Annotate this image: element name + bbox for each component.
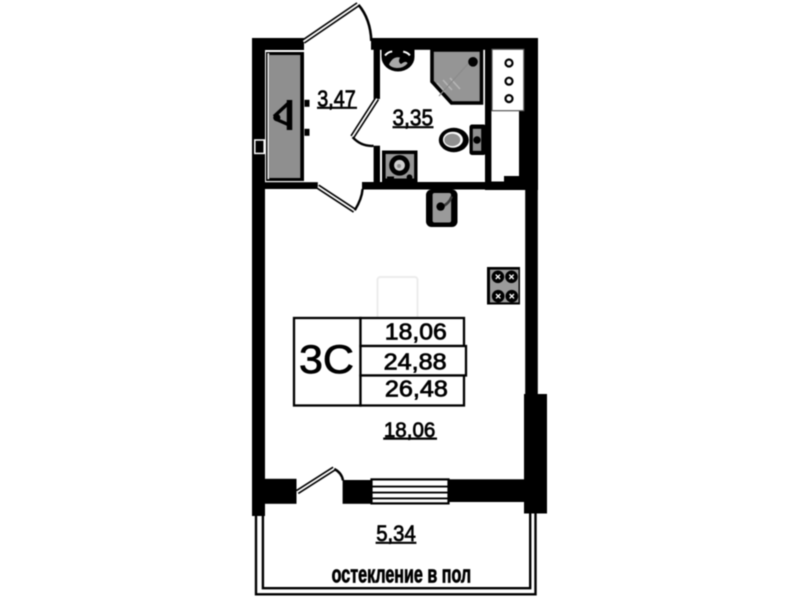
svg-text:3С: 3С xyxy=(299,338,354,382)
svg-text:остекление в пол: остекление в пол xyxy=(332,561,472,588)
svg-text:26,48: 26,48 xyxy=(385,376,448,402)
svg-text:24,88: 24,88 xyxy=(384,348,447,374)
svg-text:18,06: 18,06 xyxy=(385,319,447,345)
